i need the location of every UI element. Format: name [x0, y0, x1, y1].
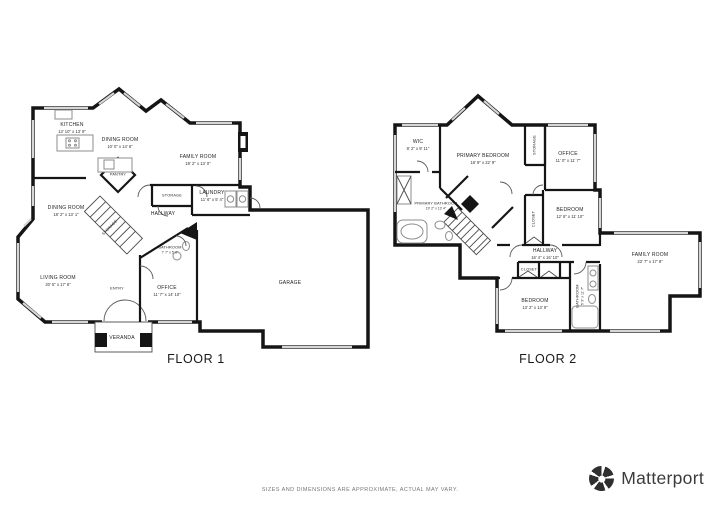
- room-name: PRIMARY BEDROOM: [457, 153, 510, 160]
- room-label-laundry: LAUNDRY 11' 6" x 5' 4": [199, 190, 224, 202]
- room-dims: 12' 6" x 11' 10": [556, 214, 583, 219]
- room-name: OFFICE: [556, 151, 581, 158]
- floorplans-drawing: [0, 0, 720, 508]
- room-dims: 11' 0" x 11' 7": [556, 158, 581, 163]
- room-label-garage: GARAGE: [279, 280, 302, 287]
- room-name: OFFICE: [153, 285, 180, 292]
- room-label-hallway-f2: HALLWAY 16' 4" x 16' 10": [531, 248, 559, 260]
- sink-icon: [104, 160, 114, 169]
- room-label-primary-bathroom: PRIMARY BATHROOM 19' 2" x 13' 4": [414, 201, 457, 210]
- room-name: KITCHEN: [58, 122, 86, 129]
- room-label-veranda: VERANDA: [109, 335, 135, 342]
- room-label-kitchen: KITCHEN 13' 10" x 13' 9": [58, 122, 86, 134]
- room-dims: 19' 2" x 13' 4": [414, 206, 457, 210]
- room-label-storage-f2: STORAGE: [533, 135, 538, 155]
- room-label-dining-top: DINING ROOM 10' 0" x 14' 6": [102, 137, 139, 149]
- room-label-storage-hall: STORAGE: [162, 194, 182, 199]
- room-dims: 11' 6" x 5' 4": [199, 197, 224, 202]
- room-name: PANTRY: [110, 173, 126, 178]
- cooktop-icon: [66, 138, 79, 148]
- room-name: VERANDA: [109, 335, 135, 342]
- room-dims: 13' 10" x 13' 9": [58, 129, 86, 134]
- room-dims: 13' 2" x 13' 9": [521, 305, 548, 310]
- room-name: HALLWAY: [151, 211, 175, 218]
- burner-icon: [69, 140, 71, 142]
- room-label-family-f1: FAMILY ROOM 19' 2" x 13' 0": [180, 154, 216, 166]
- room-dims: 18' 9" x 22' 9": [457, 160, 510, 165]
- room-dims: 7' 7" x 5' 0": [158, 250, 181, 254]
- bathtub-basin-icon: [401, 224, 423, 239]
- matterport-wordmark: Matterport: [621, 468, 704, 489]
- room-label-bedroom-mid: BEDROOM 12' 6" x 11' 10": [556, 207, 583, 219]
- room-label-dining-left: DINING ROOM 18' 2" x 13' 1": [48, 205, 85, 217]
- floor2-title: FLOOR 2: [519, 352, 577, 366]
- sink-icon: [590, 281, 596, 287]
- room-label-office-f2: OFFICE 11' 0" x 11' 7": [556, 151, 581, 163]
- room-label-pantry: PANTRY: [110, 173, 126, 178]
- burner-icon: [69, 144, 71, 146]
- room-label-family-f2: FAMILY ROOM 23' 7" x 17' 8": [632, 252, 668, 264]
- bathtub-icon: [572, 306, 598, 328]
- toilet-icon: [589, 295, 596, 304]
- room-dims: 18' 2" x 13' 1": [48, 212, 85, 217]
- room-label-bedroom-bottom: BEDROOM 13' 2" x 13' 9": [521, 298, 548, 310]
- room-dims: 20' 5" x 17' 6": [40, 282, 76, 287]
- burner-icon: [75, 140, 77, 142]
- room-label-office-f1: OFFICE 11' 7" x 14' 10": [153, 285, 180, 297]
- room-label-closet-hall: CLOSET: [521, 268, 537, 273]
- room-label-hallway-f1: HALLWAY: [151, 211, 175, 218]
- disclaimer-text: SIZES AND DIMENSIONS ARE APPROXIMATE, AC…: [262, 487, 458, 493]
- veranda-post: [140, 333, 152, 347]
- room-name: GARAGE: [279, 280, 302, 287]
- room-dims: 23' 7" x 17' 8": [632, 259, 668, 264]
- room-name: BEDROOM: [521, 298, 548, 305]
- sink-icon: [590, 270, 596, 276]
- room-dims: 19' 2" x 13' 0": [180, 161, 216, 166]
- burner-icon: [75, 144, 77, 146]
- veranda-post: [95, 333, 107, 347]
- room-label-bathroom-f1: BATHROOM 7' 7" x 5' 0": [158, 245, 181, 254]
- room-dims: 11' 7" x 14' 10": [153, 292, 180, 297]
- room-name: FAMILY ROOM: [632, 252, 668, 259]
- fireplace-opening: [241, 136, 246, 148]
- matterport-logo: Matterport: [589, 466, 704, 491]
- room-label-wic: WIC 8' 2" x 9' 11": [407, 139, 430, 151]
- room-name: LIVING ROOM: [40, 275, 76, 282]
- floorplan-page: KITCHEN 13' 10" x 13' 9" DINING ROOM 10'…: [0, 0, 720, 508]
- room-name: CLOSET: [532, 211, 537, 227]
- toilet-icon: [446, 232, 453, 241]
- room-dims: 8' 2" x 9' 11": [407, 146, 430, 151]
- room-name: FAMILY ROOM: [180, 154, 216, 161]
- room-name: CLOSET: [521, 268, 537, 273]
- room-label-closet-bedroom: CLOSET: [532, 211, 537, 227]
- appliance-icon: [55, 110, 72, 119]
- room-name: DINING ROOM: [48, 205, 85, 212]
- room-label-entry: ENTRY: [110, 287, 124, 292]
- room-name: LAUNDRY: [199, 190, 224, 197]
- sink-icon: [435, 221, 445, 229]
- dryer-drum-icon: [239, 196, 245, 202]
- room-label-living: LIVING ROOM 20' 5" x 17' 6": [40, 275, 76, 287]
- room-name: ENTRY: [110, 287, 124, 292]
- washer-drum-icon: [227, 196, 233, 202]
- room-dims: 5' 3" x 11' 7": [580, 284, 584, 307]
- room-name: STORAGE: [162, 194, 182, 199]
- room-name: HALLWAY: [531, 248, 559, 255]
- room-name: STORAGE: [533, 135, 538, 155]
- room-name: DINING ROOM: [102, 137, 139, 144]
- matterport-pinwheel-icon: [586, 463, 618, 495]
- room-dims: 16' 4" x 16' 10": [531, 255, 559, 260]
- room-dims: 10' 0" x 14' 6": [102, 144, 139, 149]
- floor2-plan: [395, 96, 700, 331]
- room-label-bathroom-f2: BATHROOM 5' 3" x 11' 7": [575, 284, 584, 307]
- room-label-primary-bedroom: PRIMARY BEDROOM 18' 9" x 22' 9": [457, 153, 510, 165]
- floor1-title: FLOOR 1: [167, 352, 225, 366]
- counter-icon: [98, 158, 132, 172]
- room-name: BEDROOM: [556, 207, 583, 214]
